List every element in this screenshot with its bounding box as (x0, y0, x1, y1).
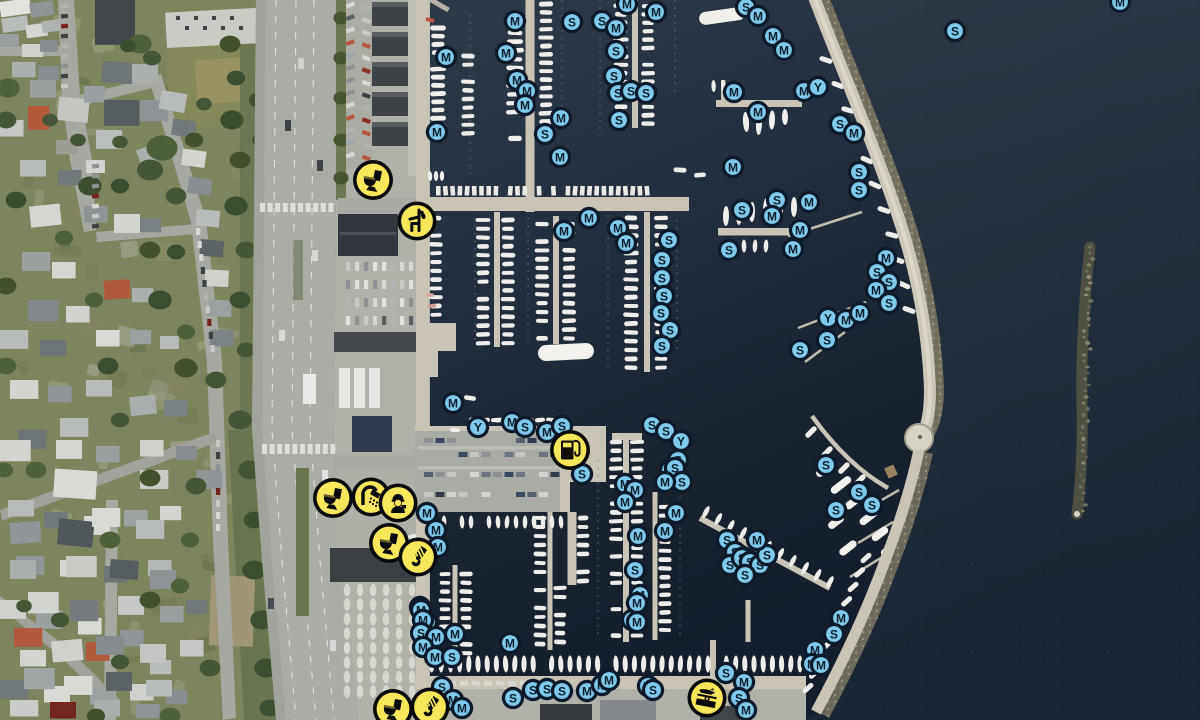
svg-text:S: S (738, 203, 746, 217)
svg-text:M: M (620, 495, 630, 509)
svg-text:M: M (816, 658, 826, 672)
svg-text:S: S (598, 14, 606, 28)
svg-text:S: S (648, 418, 656, 432)
svg-text:S: S (885, 296, 893, 310)
svg-text:S: S (832, 503, 840, 517)
svg-text:M: M (651, 5, 661, 19)
svg-text:S: S (830, 627, 838, 641)
svg-text:S: S (666, 323, 674, 337)
svg-text:S: S (665, 233, 673, 247)
svg-text:M: M (660, 524, 670, 538)
svg-text:M: M (836, 611, 846, 625)
svg-text:M: M (741, 703, 751, 717)
svg-text:M: M (795, 223, 805, 237)
svg-text:M: M (441, 50, 451, 64)
svg-text:M: M (753, 105, 763, 119)
svg-text:M: M (556, 111, 566, 125)
svg-text:M: M (432, 125, 442, 139)
svg-text:M: M (422, 506, 432, 520)
svg-text:M: M (788, 242, 798, 256)
svg-text:S: S (631, 563, 639, 577)
svg-text:S: S (823, 333, 831, 347)
svg-text:M: M (671, 506, 681, 520)
svg-text:M: M (604, 673, 614, 687)
svg-text:S: S (529, 683, 537, 697)
svg-text:M: M (779, 43, 789, 57)
svg-text:M: M (448, 396, 458, 410)
svg-text:S: S (627, 84, 635, 98)
svg-text:S: S (578, 467, 586, 481)
svg-text:Y: Y (814, 80, 822, 94)
svg-text:Y: Y (677, 434, 685, 448)
svg-text:S: S (855, 165, 863, 179)
svg-text:M: M (855, 306, 865, 320)
svg-text:M: M (660, 475, 670, 489)
svg-text:S: S (543, 682, 551, 696)
svg-text:M: M (871, 283, 881, 297)
svg-text:S: S (541, 127, 549, 141)
svg-text:M: M (768, 29, 778, 43)
svg-text:M: M (582, 684, 592, 698)
svg-text:M: M (633, 529, 643, 543)
svg-text:M: M (510, 14, 520, 28)
svg-text:S: S (763, 548, 771, 562)
svg-text:S: S (610, 69, 618, 83)
svg-text:M: M (632, 596, 642, 610)
svg-text:M: M (611, 21, 621, 35)
svg-text:M: M (622, 0, 632, 11)
svg-text:S: S (521, 420, 529, 434)
svg-text:S: S (855, 183, 863, 197)
svg-text:S: S (836, 117, 844, 131)
svg-text:S: S (662, 424, 670, 438)
svg-text:S: S (615, 113, 623, 127)
svg-text:M: M (431, 523, 441, 537)
svg-text:M: M (584, 211, 594, 225)
svg-text:S: S (741, 568, 749, 582)
svg-text:S: S (660, 289, 668, 303)
svg-text:M: M (501, 46, 511, 60)
svg-text:M: M (555, 150, 565, 164)
svg-text:S: S (658, 339, 666, 353)
svg-text:M: M (450, 627, 460, 641)
svg-text:M: M (621, 236, 631, 250)
svg-text:S: S (509, 691, 517, 705)
svg-text:S: S (657, 306, 665, 320)
svg-text:S: S (658, 253, 666, 267)
svg-text:M: M (505, 636, 515, 650)
svg-text:S: S (568, 15, 576, 29)
svg-text:S: S (658, 271, 666, 285)
svg-text:S: S (612, 44, 620, 58)
svg-text:S: S (855, 485, 863, 499)
svg-text:S: S (822, 458, 830, 472)
svg-text:S: S (951, 24, 959, 38)
svg-text:S: S (678, 475, 686, 489)
svg-text:M: M (804, 195, 814, 209)
svg-text:M: M (520, 98, 530, 112)
svg-text:M: M (559, 224, 569, 238)
svg-text:Y: Y (824, 311, 832, 325)
svg-text:S: S (558, 684, 566, 698)
svg-text:Y: Y (474, 420, 482, 434)
svg-text:M: M (752, 533, 762, 547)
svg-text:M: M (728, 160, 738, 174)
svg-text:M: M (849, 126, 859, 140)
svg-text:M: M (753, 9, 763, 23)
svg-text:S: S (722, 666, 730, 680)
svg-text:S: S (796, 343, 804, 357)
svg-text:M: M (430, 650, 440, 664)
svg-text:S: S (725, 243, 733, 257)
svg-text:M: M (767, 209, 777, 223)
svg-text:M: M (632, 615, 642, 629)
svg-text:S: S (649, 683, 657, 697)
svg-text:S: S (642, 86, 650, 100)
svg-text:M: M (542, 425, 552, 439)
svg-text:S: S (868, 498, 876, 512)
svg-text:M: M (457, 701, 467, 715)
svg-text:M: M (729, 85, 739, 99)
svg-text:S: S (448, 650, 456, 664)
svg-text:M: M (1115, 0, 1125, 9)
